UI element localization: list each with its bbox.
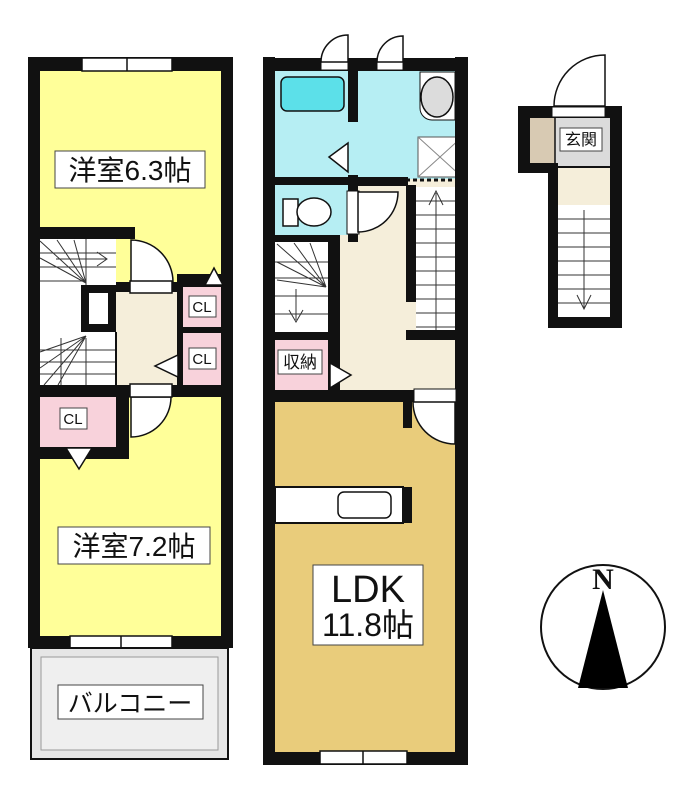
- wall: [403, 487, 412, 523]
- ldk-text-2: 11.8帖: [322, 607, 414, 643]
- cl1-text: CL: [192, 299, 211, 316]
- lower-floor-plan: 収納 LDK 11.8帖: [263, 35, 468, 765]
- bathtub-icon: [281, 77, 344, 111]
- cl3-label: CL: [60, 408, 87, 429]
- compass-n-text: N: [592, 563, 614, 596]
- wash-basin-icon: [421, 77, 453, 117]
- entrance-text: 玄関: [565, 131, 597, 149]
- wall: [358, 177, 408, 186]
- wall: [403, 402, 412, 428]
- entrance-corridor: [558, 168, 610, 205]
- wall: [548, 163, 558, 328]
- entrance-door: [552, 55, 605, 117]
- wall: [28, 227, 135, 239]
- toilet-icon: [283, 198, 331, 226]
- wall: [548, 317, 622, 328]
- room63-text: 洋室6.3帖: [69, 155, 192, 186]
- wall: [518, 106, 530, 173]
- wall: [263, 235, 340, 242]
- storage-label: 収納: [278, 350, 322, 374]
- entrance-label: 玄関: [560, 128, 602, 151]
- wall: [610, 106, 622, 328]
- ldk-text-1: LDK: [331, 569, 405, 611]
- upper-floor-plan: 洋室6.3帖 CL CL CL 洋室7.2帖 バルコニー: [28, 57, 233, 759]
- cl3-text: CL: [63, 411, 82, 428]
- wall: [406, 330, 468, 340]
- floor-plan-svg: 洋室6.3帖 CL CL CL 洋室7.2帖 バルコニー: [0, 0, 697, 800]
- cl2-label: CL: [189, 348, 216, 369]
- entrance-section: 玄関: [518, 55, 622, 328]
- entry-door-1: [321, 35, 348, 70]
- wall: [348, 62, 358, 122]
- balcony-text: バルコニー: [68, 690, 193, 718]
- compass: N: [541, 563, 665, 689]
- cl1-label: CL: [189, 296, 216, 317]
- storage-text: 収納: [283, 353, 317, 372]
- balcony-label: バルコニー: [58, 685, 203, 719]
- kitchen-counter: [275, 487, 403, 523]
- stair-void: [89, 293, 108, 324]
- wall: [221, 57, 233, 648]
- wall: [116, 385, 129, 453]
- ldk-label: LDK 11.8帖: [313, 565, 423, 645]
- cl2-text: CL: [192, 351, 211, 368]
- entry-door-2: [377, 36, 403, 70]
- wall: [263, 390, 416, 402]
- wall: [177, 327, 233, 333]
- kitchen-sink-icon: [338, 492, 391, 518]
- window-ldk: [320, 751, 407, 764]
- wall: [275, 177, 358, 185]
- lower-stairs-left: [275, 242, 328, 332]
- entrance-porch: [530, 118, 555, 165]
- room72-text: 洋室7.2帖: [73, 531, 196, 562]
- room72-label: 洋室7.2帖: [58, 527, 210, 564]
- wall: [263, 57, 275, 765]
- window-top: [82, 58, 172, 71]
- room63-label: 洋室6.3帖: [55, 151, 205, 188]
- wall: [455, 57, 468, 765]
- floor-plan: 洋室6.3帖 CL CL CL 洋室7.2帖 バルコニー: [0, 0, 697, 800]
- wall: [28, 57, 40, 648]
- wall: [406, 185, 416, 302]
- wall: [263, 58, 468, 71]
